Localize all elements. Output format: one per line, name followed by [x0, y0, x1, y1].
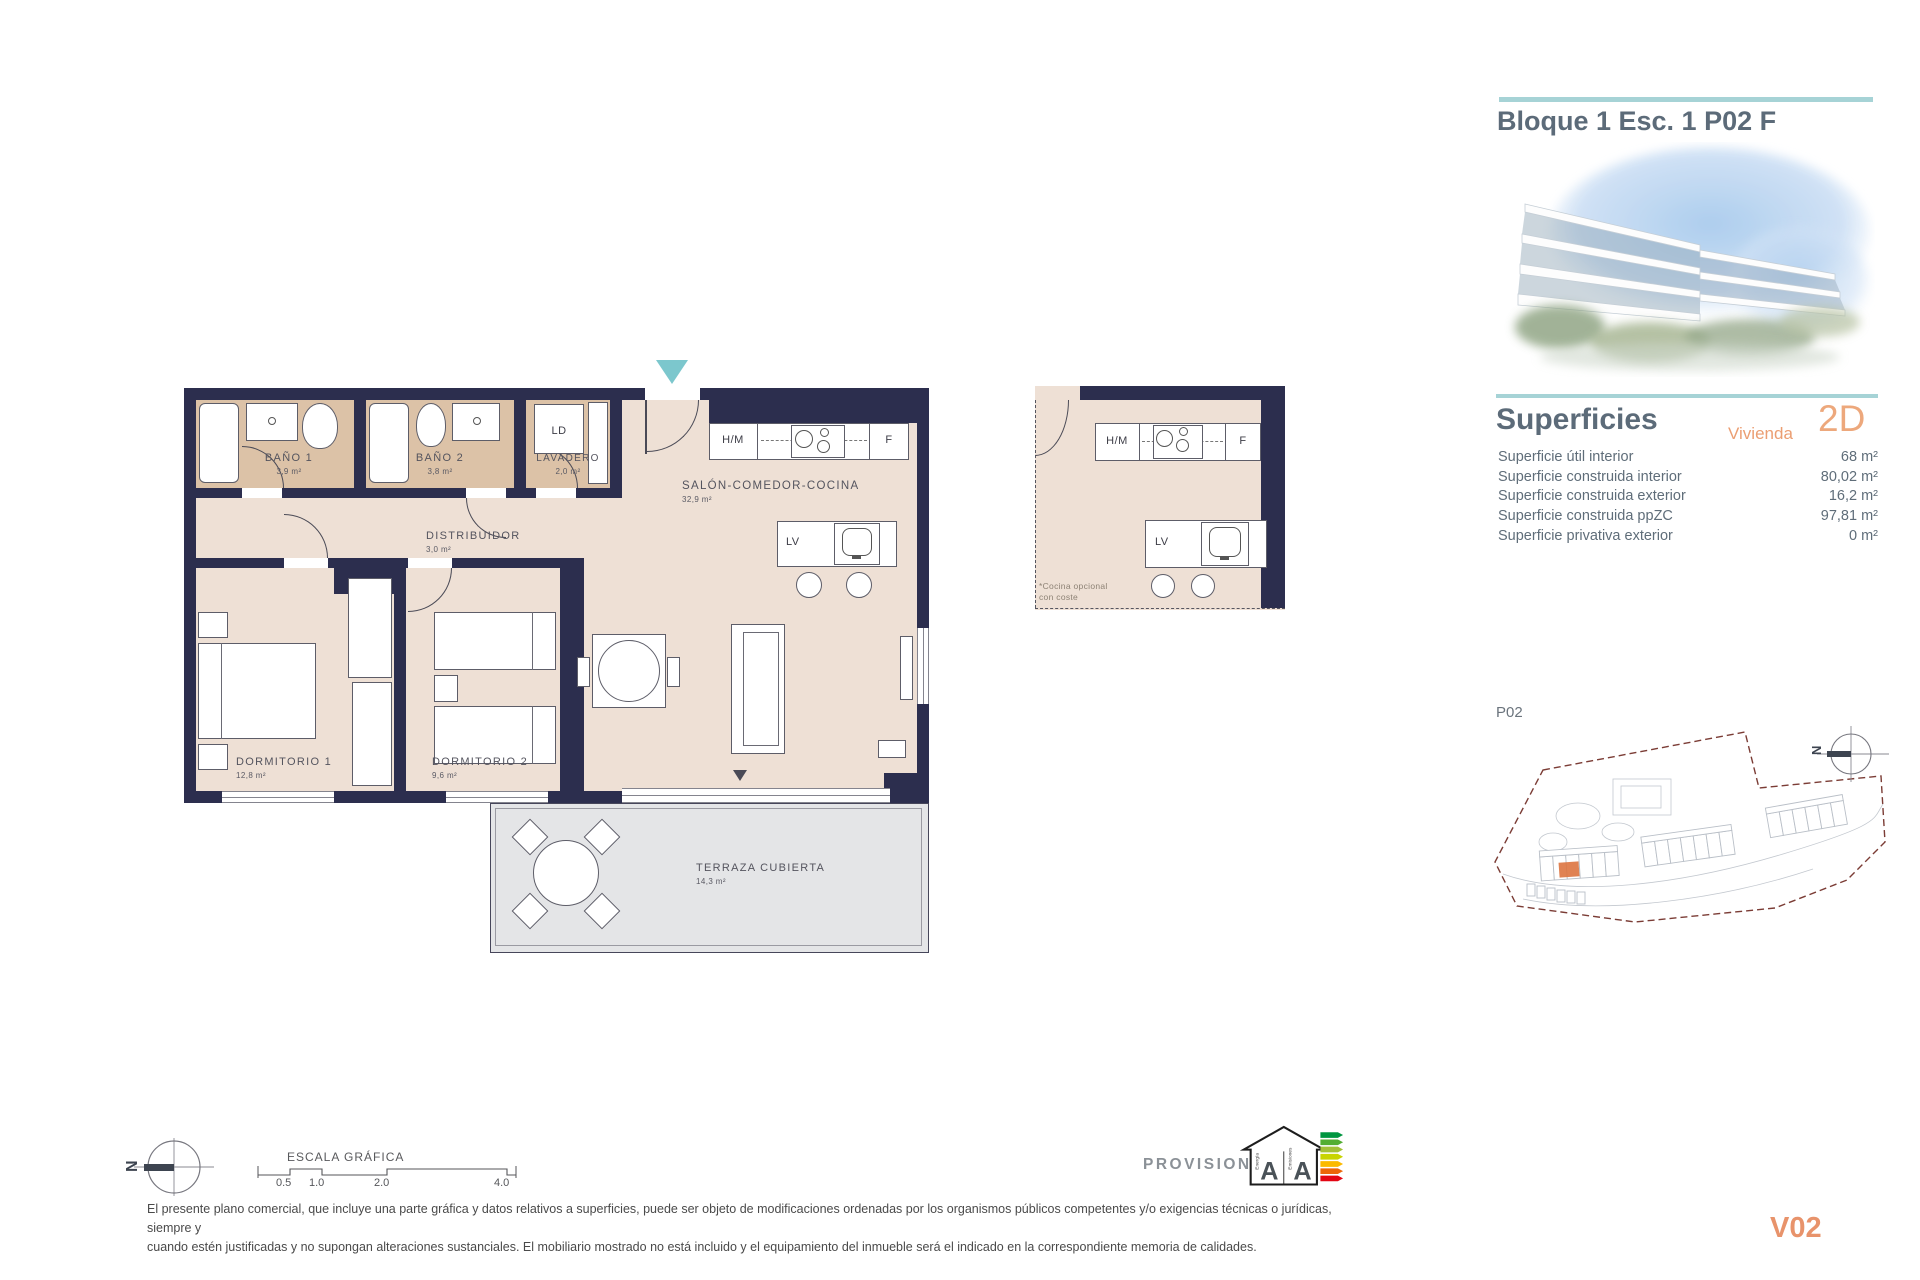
room-label: BAÑO 1 3,9 m²: [239, 452, 339, 478]
sofa-seat: [743, 632, 779, 746]
window: [446, 791, 548, 803]
room-name: TERRAZA CUBIERTA: [696, 862, 825, 875]
stool: [1191, 574, 1215, 598]
row-value: 97,81 m²: [1821, 507, 1878, 527]
room-area: 32,9 m²: [682, 493, 859, 506]
north-compass-icon: N: [118, 1134, 218, 1200]
door-opening: [645, 388, 700, 400]
terrace: TERRAZA CUBIERTA 14,3 m²: [490, 803, 929, 953]
note-line: *Cocina opcional: [1039, 581, 1108, 592]
room-label: DORMITORIO 1 12,8 m²: [236, 756, 332, 782]
room-area: 3,0 m²: [426, 543, 520, 556]
scale-tick: 2.0: [374, 1177, 389, 1189]
room-label: DISTRIBUIDOR 3,0 m²: [426, 530, 520, 556]
row-value: 80,02 m²: [1821, 468, 1878, 488]
table-row: Superficie útil interior 68 m²: [1498, 448, 1878, 468]
door-opening: [408, 558, 452, 568]
sliding-door: [622, 788, 890, 803]
oven-microwave-label: H/M: [709, 434, 757, 446]
table-row: Superficie construida ppZC 97,81 m²: [1498, 507, 1878, 527]
nightstand: [198, 744, 228, 770]
highlighted-unit: [1559, 861, 1580, 877]
wall: [1261, 386, 1285, 608]
disclaimer-line: cuando estén justificadas y no supongan …: [147, 1238, 1367, 1257]
counter-divider: [1139, 423, 1140, 461]
entrance-marker-icon: [656, 360, 688, 384]
burner: [1179, 427, 1188, 436]
bathtub: [199, 403, 239, 483]
bed-pillow: [198, 643, 222, 739]
apartment-walls: LD H/M F LV: [184, 388, 929, 803]
room-name: DORMITORIO 1: [236, 756, 332, 769]
door-opening: [242, 488, 282, 498]
superficies-table: Superficie útil interior 68 m² Superfici…: [1498, 448, 1878, 547]
cut-line: [1035, 608, 1285, 609]
room-name: DORMITORIO 2: [432, 756, 528, 769]
burner: [1176, 439, 1189, 452]
room-name: BAÑO 2: [390, 452, 490, 465]
sink-drain: [268, 417, 276, 425]
row-value: 16,2 m²: [1829, 487, 1878, 507]
burner: [795, 430, 813, 448]
site-plan: N: [1483, 724, 1893, 924]
room-distribuidor-floor: [196, 498, 622, 558]
wall: [709, 400, 917, 423]
burner: [1156, 430, 1173, 447]
terrace-table: [533, 840, 599, 906]
washer-box: LD: [534, 404, 584, 454]
room-area: 2,0 m²: [518, 465, 618, 478]
emissions-letter: A: [1293, 1157, 1311, 1185]
door-opening: [466, 488, 506, 498]
oven-microwave-label: H/M: [1095, 435, 1139, 447]
vivienda-label: Vivienda: [1728, 424, 1793, 444]
disclaimer: El presente plano comercial, que incluye…: [147, 1200, 1367, 1257]
row-value: 0 m²: [1849, 527, 1878, 547]
table-row: Superficie construida interior 80,02 m²: [1498, 468, 1878, 488]
door-opening: [284, 558, 328, 568]
table-row: Superficie privativa exterior 0 m²: [1498, 527, 1878, 547]
room-area: 14,3 m²: [696, 875, 825, 888]
stool: [796, 572, 822, 598]
stool: [846, 572, 872, 598]
site-level-label: P02: [1496, 704, 1523, 721]
bed-pillow: [532, 612, 556, 670]
door-opening: [536, 488, 576, 498]
energy-scale-arrows: [1320, 1132, 1343, 1181]
toilet: [416, 403, 446, 447]
room-name: DISTRIBUIDOR: [426, 530, 520, 543]
north-label: N: [124, 1160, 141, 1172]
scale-tick: 1.0: [309, 1177, 324, 1189]
room-label: SALÓN-COMEDOR-COCINA 32,9 m²: [682, 480, 859, 506]
wall: [1080, 386, 1261, 400]
window: [917, 628, 929, 704]
window: [222, 791, 334, 803]
floor-plan: LD H/M F LV: [184, 388, 929, 953]
room-area: 3,9 m²: [239, 465, 339, 478]
energy-rating-icon: Energía Emisiones A A: [1240, 1120, 1352, 1188]
faucet: [852, 556, 861, 559]
faucet: [1220, 557, 1229, 560]
dishwasher-label: LV: [786, 536, 800, 548]
table-row: Superficie construida exterior 16,2 m²: [1498, 487, 1878, 507]
row-value: 68 m²: [1841, 448, 1878, 468]
dishwasher-label: LV: [1155, 536, 1169, 548]
nightstand: [434, 675, 458, 702]
energy-letter: A: [1260, 1157, 1278, 1185]
row-label: Superficie construida exterior: [1498, 487, 1686, 507]
burner: [820, 428, 829, 437]
toilet: [302, 403, 338, 449]
building-rendering: [1500, 142, 1875, 377]
sink-basin: [1209, 527, 1241, 557]
fridge-label: F: [869, 434, 909, 446]
chair: [667, 657, 680, 687]
nightstand: [198, 612, 228, 638]
plan-sheet: LD H/M F LV: [0, 0, 1920, 1280]
row-label: Superficie construida interior: [1498, 468, 1682, 488]
room-label: LAVADERO 2,0 m²: [518, 452, 618, 478]
row-label: Superficie útil interior: [1498, 448, 1633, 468]
disclaimer-line: El presente plano comercial, que incluye…: [147, 1200, 1367, 1238]
room-label: TERRAZA CUBIERTA 14,3 m²: [696, 862, 825, 888]
kitchen-option-note: *Cocina opcional con coste: [1039, 581, 1108, 602]
fridge-label: F: [1225, 435, 1261, 447]
tv-bench: [900, 636, 913, 700]
north-label: N: [1809, 746, 1824, 755]
room-area: 12,8 m²: [236, 769, 332, 782]
room-name: SALÓN-COMEDOR-COCINA: [682, 480, 859, 493]
washer-label: LD: [551, 425, 566, 437]
bed-pillow: [532, 706, 556, 764]
accent-rule: [1499, 97, 1873, 102]
stool: [1151, 574, 1175, 598]
wardrobe: [352, 682, 392, 786]
superficies-title: Superficies: [1496, 403, 1658, 437]
side-table: [878, 740, 906, 758]
burner: [817, 440, 830, 453]
counter-divider: [757, 423, 758, 460]
sink-basin: [842, 528, 872, 556]
room-area: 9,6 m²: [432, 769, 528, 782]
room-label: DORMITORIO 2 9,6 m²: [432, 756, 528, 782]
note-line: con coste: [1039, 592, 1108, 603]
room-name: LAVADERO: [518, 452, 618, 465]
room-label: BAÑO 2 3,8 m²: [390, 452, 490, 478]
row-label: Superficie construida ppZC: [1498, 507, 1673, 527]
room-name: BAÑO 1: [239, 452, 339, 465]
terrace-door-marker-icon: [733, 770, 747, 781]
kitchen-option-plan: H/M F LV *Cocina opcional con coste: [1035, 386, 1285, 614]
scale-tick: 4.0: [494, 1177, 509, 1189]
page-title: Bloque 1 Esc. 1 P02 F: [1497, 106, 1776, 137]
chair: [577, 657, 590, 687]
sink-drain: [473, 417, 481, 425]
version-label: V02: [1770, 1212, 1822, 1245]
north-compass-icon: N: [1809, 726, 1889, 782]
room-area: 3,8 m²: [390, 465, 490, 478]
row-label: Superficie privativa exterior: [1498, 527, 1673, 547]
wardrobe: [348, 578, 392, 678]
scale-tick: 0.5: [276, 1177, 291, 1189]
vivienda-tipo: 2D: [1818, 398, 1865, 440]
dining-table-top: [598, 640, 660, 702]
